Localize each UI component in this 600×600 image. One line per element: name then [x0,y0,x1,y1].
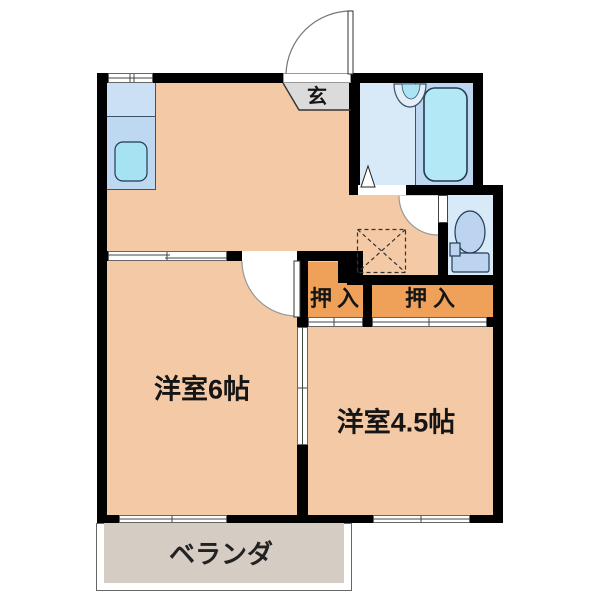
washing-machine-space-icon [358,230,406,273]
room6-door-leaf [294,261,300,317]
toilet-door-area [399,196,438,235]
room45-label: 洋室4.5帖 [337,410,456,437]
closet-left-label: 押入 [310,288,364,310]
room6-door-area [242,261,297,316]
entrance-label: 玄 [307,87,327,107]
veranda-label: ベランダ [169,541,273,567]
toilet-icon [450,211,489,272]
entrance-door-arc [286,11,351,74]
bathroom-door-icon [361,166,375,187]
entrance-door-leaf [348,11,353,74]
kitchen-sink-icon [115,142,147,181]
bathtub-icon [424,88,467,181]
plan-detail-layer [0,0,600,600]
floor-plan: 玄 押入 押入 洋室6帖 洋室4.5帖 ベランダ [0,0,600,600]
closet-right-label: 押入 [405,288,461,310]
room6-label: 洋室6帖 [154,377,250,404]
